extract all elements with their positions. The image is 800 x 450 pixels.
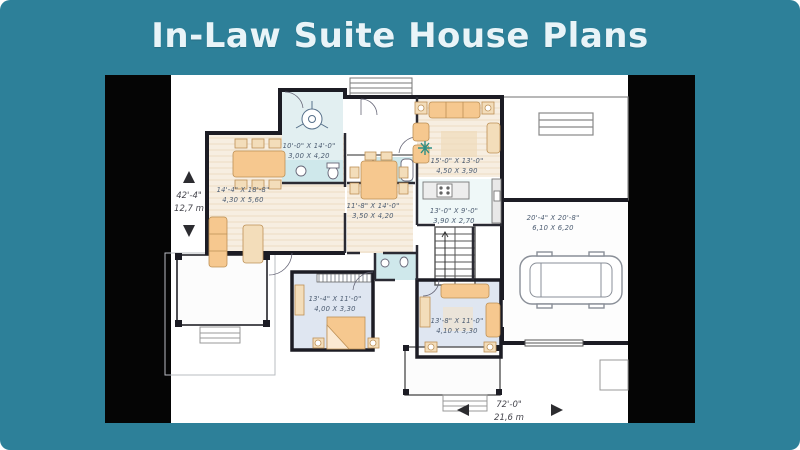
- top-deck-stairs: [350, 78, 412, 97]
- right-deck: [502, 97, 628, 200]
- dining-left-label-imperial: 14'-4" X 18'-8": [217, 186, 270, 194]
- arrow-down-icon: [183, 225, 195, 237]
- floor-plan-drawing: 14'-4" X 18'-8" 4,30 X 5,60 10'-0" X 14'…: [105, 75, 695, 423]
- kitchen-left-label-metric: 3,00 X 4,20: [288, 152, 329, 160]
- side-patio: [600, 360, 628, 390]
- bedroom-left-label-metric: 4,00 X 3,30: [314, 305, 355, 313]
- kitchen-right-label-imperial: 13'-0" X 9'-0": [430, 207, 478, 215]
- garage-label-imperial: 20'-4" X 20'-8": [527, 214, 580, 222]
- dining-right-label-metric: 3,50 X 4,20: [352, 212, 393, 220]
- pillarbox-left: [105, 75, 171, 423]
- dining-left-label-metric: 4,30 X 5,60: [222, 196, 263, 204]
- dining-right-label-imperial: 11'-8" X 14'-0": [347, 202, 400, 210]
- bedroom-right-label-imperial: 13'-8" X 11'-0": [431, 317, 484, 325]
- arrow-up-icon: [183, 171, 195, 183]
- living-right-label-metric: 4,50 X 3,90: [436, 167, 477, 175]
- kitchen-left-label-imperial: 10'-0" X 14'-0": [283, 142, 336, 150]
- width-metric: 21,6 m: [494, 413, 524, 423]
- depth-imperial: 42'-4": [176, 191, 202, 201]
- kitchen-right-label-metric: 3,90 X 2,70: [433, 217, 474, 225]
- width-imperial: 72'-0": [496, 400, 522, 410]
- front-porch: [165, 253, 275, 375]
- depth-metric: 12,7 m: [174, 204, 204, 214]
- living-right-label-imperial: 15'-0" X 13'-0": [431, 157, 484, 165]
- floor-plan-image: 14'-4" X 18'-8" 4,30 X 5,60 10'-0" X 14'…: [105, 75, 695, 423]
- garage-door: [525, 340, 583, 346]
- bedroom-right-label-metric: 4,10 X 3,30: [436, 327, 477, 335]
- staircase-icon: [435, 227, 475, 285]
- garage-label-metric: 6,10 X 6,20: [532, 224, 573, 232]
- depth-dimension: 42'-4" 12,7 m: [174, 171, 204, 237]
- page-title: In-Law Suite House Plans: [0, 0, 800, 72]
- car-icon: [520, 252, 622, 308]
- closet: [317, 274, 372, 282]
- arrow-right-icon: [551, 404, 563, 416]
- bedroom-left-label-imperial: 13'-4" X 11'-0": [309, 295, 362, 303]
- pillarbox-right: [628, 75, 695, 423]
- slide: In-Law Suite House Plans: [0, 0, 800, 450]
